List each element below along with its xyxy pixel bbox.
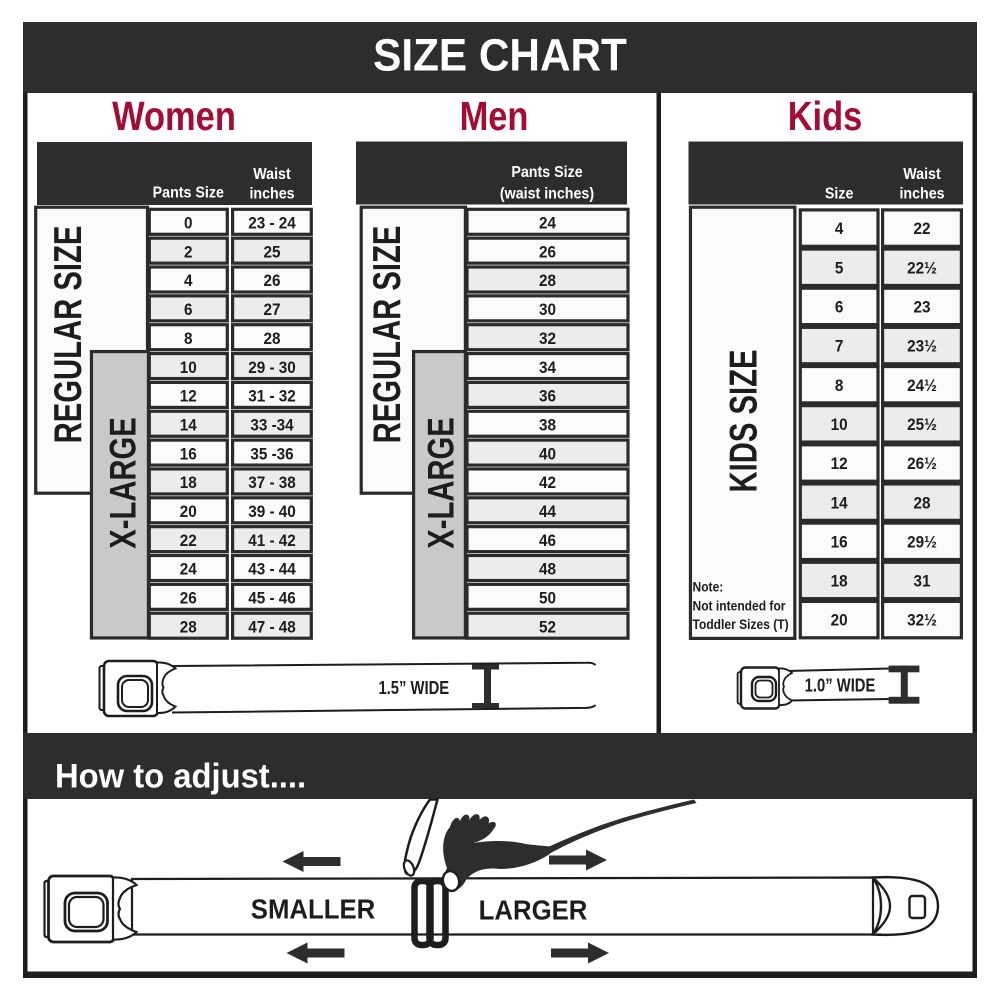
- svg-text:10: 10: [831, 415, 848, 434]
- svg-text:Waist: Waist: [253, 167, 291, 184]
- svg-text:31 - 32: 31 - 32: [248, 387, 296, 406]
- svg-text:22: 22: [913, 219, 930, 238]
- svg-text:6: 6: [184, 300, 193, 319]
- svg-text:26: 26: [263, 271, 280, 290]
- svg-text:Men: Men: [460, 94, 529, 139]
- svg-text:22: 22: [180, 531, 197, 550]
- svg-text:26: 26: [539, 243, 556, 262]
- svg-text:12: 12: [180, 387, 197, 406]
- svg-text:6: 6: [835, 298, 844, 317]
- svg-text:26: 26: [180, 589, 197, 608]
- svg-text:26½: 26½: [907, 454, 937, 473]
- svg-text:inches: inches: [899, 186, 944, 203]
- svg-text:Note:: Note:: [693, 579, 724, 595]
- svg-text:32½: 32½: [907, 611, 937, 630]
- svg-text:SIZE CHART: SIZE CHART: [373, 30, 627, 80]
- svg-text:SMALLER: SMALLER: [251, 894, 375, 925]
- svg-text:31: 31: [913, 572, 930, 591]
- svg-text:45 - 46: 45 - 46: [248, 589, 296, 608]
- svg-text:16: 16: [831, 533, 848, 552]
- svg-text:Waist: Waist: [903, 167, 941, 184]
- svg-text:4: 4: [184, 271, 193, 290]
- svg-text:44: 44: [539, 502, 556, 521]
- svg-text:1.0” WIDE: 1.0” WIDE: [805, 675, 876, 696]
- svg-text:16: 16: [180, 445, 197, 464]
- svg-text:36: 36: [539, 387, 556, 406]
- svg-text:50: 50: [539, 589, 556, 608]
- svg-text:REGULAR SIZE: REGULAR SIZE: [47, 226, 90, 444]
- svg-text:14: 14: [180, 416, 197, 435]
- svg-text:18: 18: [831, 572, 848, 591]
- svg-text:32: 32: [539, 329, 556, 348]
- svg-text:29 - 30: 29 - 30: [248, 358, 296, 377]
- svg-text:43 - 44: 43 - 44: [248, 560, 296, 579]
- svg-text:8: 8: [184, 329, 193, 348]
- svg-text:inches: inches: [249, 186, 294, 203]
- svg-text:47 - 48: 47 - 48: [248, 618, 296, 637]
- svg-text:4: 4: [835, 219, 844, 238]
- svg-text:0: 0: [184, 214, 193, 233]
- svg-text:25½: 25½: [907, 415, 937, 434]
- svg-text:12: 12: [831, 454, 848, 473]
- svg-text:X-LARGE: X-LARGE: [421, 417, 462, 548]
- svg-text:39 - 40: 39 - 40: [248, 502, 296, 521]
- svg-text:40: 40: [539, 445, 556, 464]
- svg-text:Women: Women: [112, 94, 236, 139]
- svg-text:8: 8: [835, 376, 844, 395]
- svg-text:Not intended for: Not intended for: [693, 598, 786, 614]
- svg-text:10: 10: [180, 358, 197, 377]
- svg-text:24: 24: [180, 560, 197, 579]
- svg-text:24½: 24½: [907, 376, 937, 395]
- svg-text:37 - 38: 37 - 38: [248, 473, 296, 492]
- svg-text:Pants Size: Pants Size: [153, 185, 224, 202]
- svg-text:LARGER: LARGER: [479, 895, 588, 926]
- svg-text:28: 28: [263, 329, 280, 348]
- svg-text:35 -36: 35 -36: [250, 445, 293, 464]
- svg-text:52: 52: [539, 618, 556, 637]
- svg-text:How to adjust....: How to adjust....: [55, 758, 306, 796]
- svg-text:38: 38: [539, 416, 556, 435]
- svg-text:1.5” WIDE: 1.5” WIDE: [378, 677, 449, 698]
- svg-text:22½: 22½: [907, 259, 937, 278]
- svg-text:20: 20: [831, 611, 848, 630]
- svg-text:27: 27: [263, 300, 280, 319]
- svg-text:Toddler Sizes (T): Toddler Sizes (T): [693, 616, 789, 632]
- svg-text:X-LARGE: X-LARGE: [104, 417, 145, 548]
- svg-text:20: 20: [180, 502, 197, 521]
- svg-text:23½: 23½: [907, 337, 937, 356]
- svg-text:23 - 24: 23 - 24: [248, 214, 296, 233]
- svg-text:42: 42: [539, 473, 556, 492]
- svg-text:REGULAR SIZE: REGULAR SIZE: [366, 226, 409, 444]
- svg-text:48: 48: [539, 560, 556, 579]
- svg-text:7: 7: [835, 337, 844, 356]
- svg-text:41 - 42: 41 - 42: [248, 531, 296, 550]
- svg-text:29½: 29½: [907, 533, 937, 552]
- svg-text:Kids: Kids: [788, 94, 863, 139]
- svg-text:28: 28: [180, 618, 197, 637]
- svg-text:23: 23: [913, 298, 930, 317]
- svg-text:30: 30: [539, 300, 556, 319]
- svg-text:2: 2: [184, 243, 193, 262]
- svg-text:46: 46: [539, 531, 556, 550]
- svg-text:KIDS SIZE: KIDS SIZE: [723, 349, 766, 492]
- svg-text:5: 5: [835, 259, 844, 278]
- svg-text:(waist inches): (waist inches): [500, 186, 594, 203]
- svg-text:18: 18: [180, 473, 197, 492]
- svg-text:28: 28: [539, 271, 556, 290]
- svg-text:24: 24: [539, 214, 556, 233]
- svg-text:Size: Size: [825, 186, 854, 203]
- svg-text:34: 34: [539, 358, 556, 377]
- svg-text:28: 28: [913, 494, 930, 513]
- svg-text:25: 25: [263, 243, 280, 262]
- svg-text:Pants Size: Pants Size: [511, 165, 582, 182]
- svg-text:33 -34: 33 -34: [250, 416, 293, 435]
- svg-text:14: 14: [831, 494, 848, 513]
